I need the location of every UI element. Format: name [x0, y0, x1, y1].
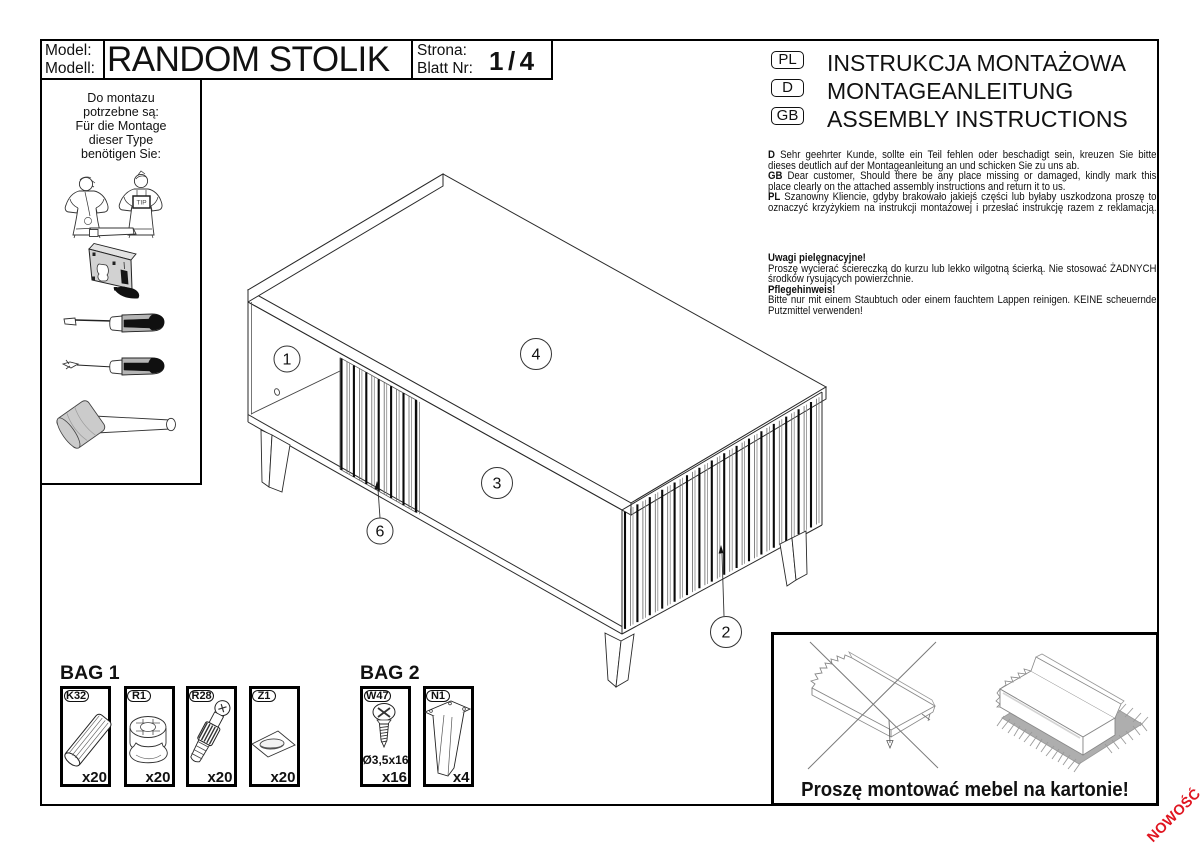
svg-text:TIP: TIP [136, 200, 146, 207]
svg-text:1: 1 [283, 352, 292, 369]
svg-text:6: 6 [376, 524, 385, 541]
svg-text:3: 3 [493, 476, 502, 493]
svg-text:2: 2 [722, 625, 731, 642]
svg-text:4: 4 [532, 347, 541, 364]
